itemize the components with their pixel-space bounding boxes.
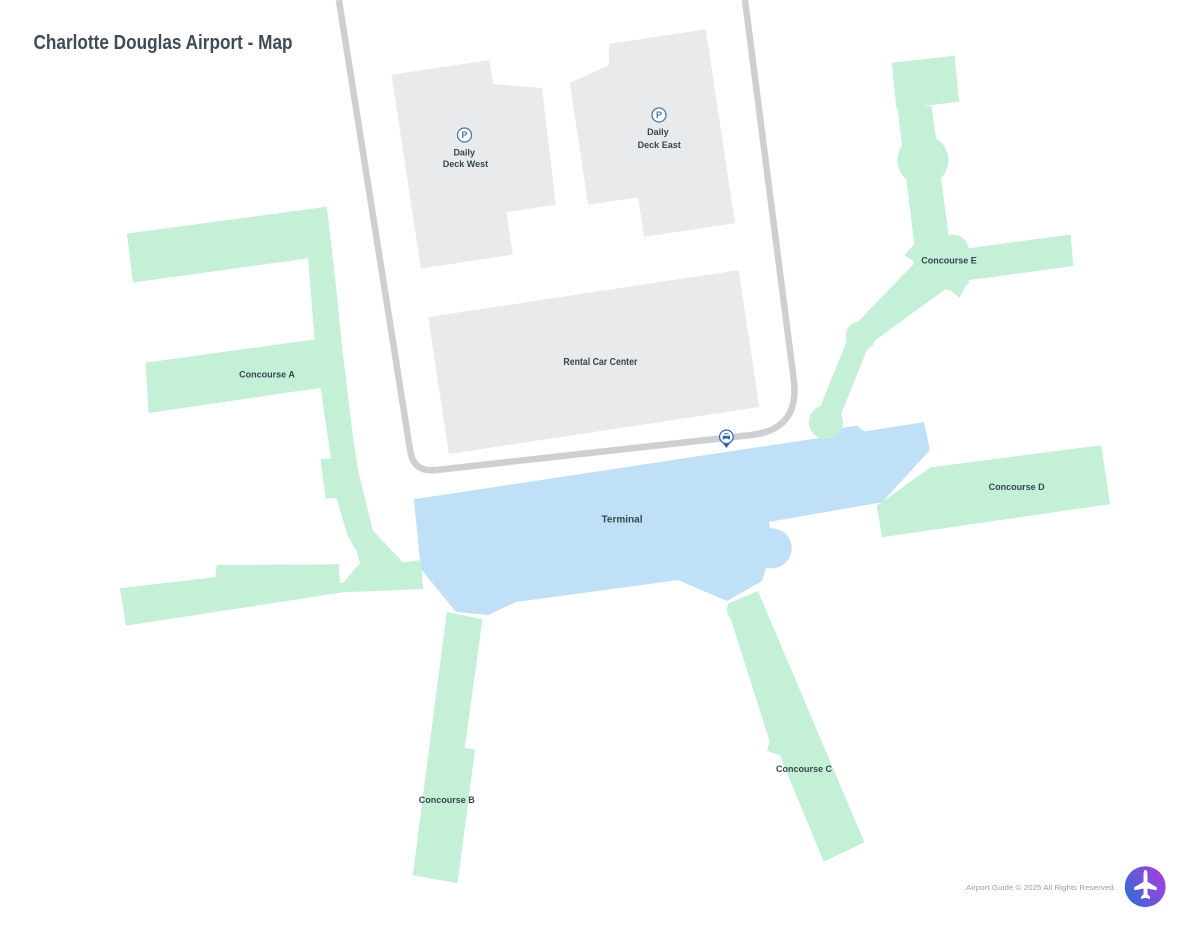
svg-text:Daily: Daily [453, 148, 475, 158]
svg-text:Concourse B: Concourse B [419, 795, 476, 805]
svg-text:Deck East: Deck East [638, 140, 681, 150]
svg-text:P: P [656, 110, 662, 120]
svg-text:Concourse A: Concourse A [239, 370, 295, 380]
svg-text:Deck West: Deck West [443, 159, 488, 169]
svg-text:Charlotte Douglas Airport - Ma: Charlotte Douglas Airport - Map [34, 31, 293, 54]
svg-text:Terminal: Terminal [602, 515, 643, 526]
svg-text:P: P [461, 130, 467, 140]
svg-text:Concourse C: Concourse C [776, 764, 833, 774]
svg-text:Daily: Daily [647, 127, 669, 137]
svg-text:Concourse E: Concourse E [921, 256, 977, 266]
svg-text:Concourse D: Concourse D [989, 482, 1046, 492]
svg-text:Rental Car Center: Rental Car Center [563, 356, 637, 368]
svg-text:Airport Guide © 2025 All Right: Airport Guide © 2025 All Rights Reserved… [966, 883, 1116, 892]
